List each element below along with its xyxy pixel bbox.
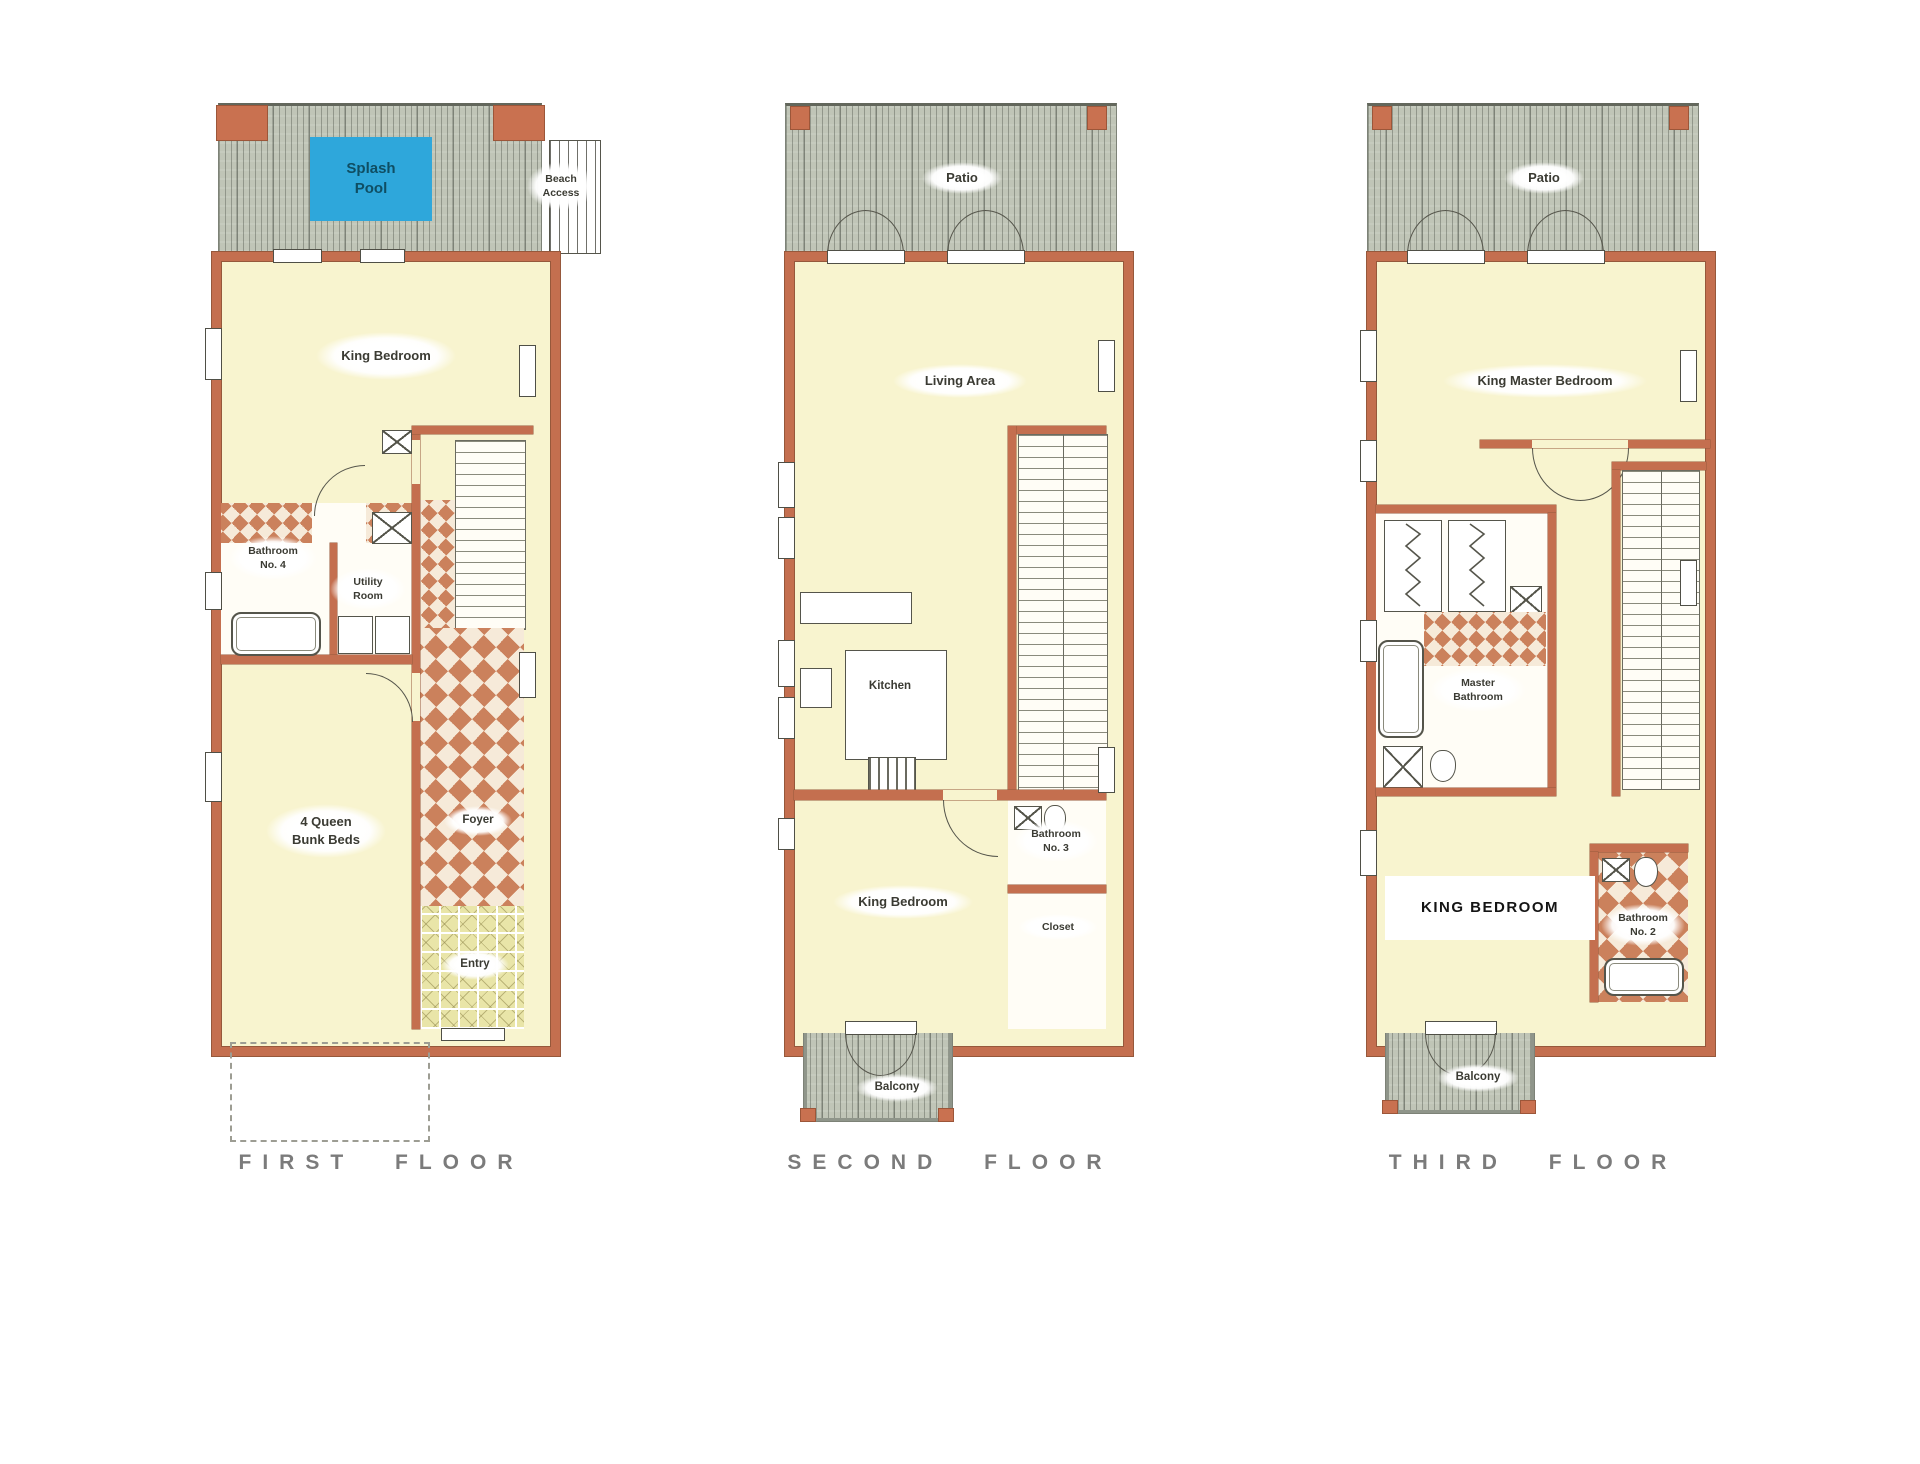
stove (868, 757, 916, 791)
bunk-room-label: 4 Queen Bunk Beds (266, 804, 386, 858)
deck-post (1088, 107, 1106, 129)
living-area-label: Living Area (893, 364, 1027, 398)
window (273, 249, 322, 263)
bunkroom-top-wall (221, 655, 412, 664)
patio-label: Patio (922, 162, 1002, 194)
splash-pool: Splash Pool (310, 137, 432, 221)
deck-post (1373, 107, 1391, 129)
window (778, 697, 795, 739)
utility-closet (372, 512, 412, 544)
toilet (1634, 857, 1658, 887)
window (205, 572, 222, 610)
third-floor-title: THIRD FLOOR (1363, 1148, 1703, 1178)
driveway-outline (230, 1042, 430, 1142)
sink (382, 430, 412, 454)
bathtub (1604, 958, 1684, 996)
window (1680, 350, 1697, 402)
king-bedroom-label: King Bedroom (833, 885, 973, 919)
closet-rod-zigzag (1464, 524, 1490, 608)
entry-label: Entry (441, 950, 509, 980)
deck-post (494, 106, 544, 140)
bathroom2-wall (1590, 844, 1688, 852)
patio-door-opening (947, 250, 1025, 264)
hall-divider-wall (1548, 513, 1556, 796)
entry-front-door-opening (441, 1028, 505, 1041)
stair-wall (1008, 426, 1016, 790)
bathtub (231, 612, 321, 656)
deck-post (217, 106, 267, 140)
deck-post (1670, 107, 1688, 129)
second-floor-title: SECOND FLOOR (780, 1148, 1120, 1178)
hall-tile-strip (420, 500, 455, 628)
floor-plan-sheet: Splash Pool Beach Access King Bedroom Ba… (0, 0, 1920, 1464)
patio-door-opening (827, 250, 905, 264)
balcony-post (1521, 1101, 1535, 1113)
closet-label: Closet (1018, 914, 1098, 940)
king-bedroom-label: King Bedroom (316, 332, 456, 380)
bedroom-door-gap (943, 790, 997, 800)
window (778, 462, 795, 508)
corridor-door-gap (412, 440, 420, 484)
window (1360, 440, 1377, 482)
bathroom4-label: Bathroom No. 4 (229, 536, 317, 580)
beach-access-label: Beach Access (527, 162, 595, 210)
window (778, 640, 795, 687)
kitchen-island (800, 592, 912, 624)
kitchen-counter (845, 650, 947, 760)
master-bathroom-label: Master Bathroom (1430, 668, 1526, 712)
master-bathtub (1378, 640, 1424, 738)
foyer-tile-floor (420, 628, 524, 906)
window (1360, 830, 1377, 876)
master-bath-tile (1424, 612, 1546, 666)
patio-door-opening (1407, 250, 1485, 264)
bath-bottom-wall (1376, 788, 1556, 796)
patio-label: Patio (1504, 162, 1584, 194)
balcony-post (801, 1109, 815, 1121)
king-bedroom-label: KING BEDROOM (1385, 876, 1595, 940)
refrigerator (800, 668, 832, 708)
window (519, 652, 536, 698)
foyer-label: Foyer (444, 806, 512, 836)
second-floor-stairs (1018, 434, 1108, 792)
hall-door-gap (1532, 440, 1628, 448)
sink (1602, 858, 1630, 882)
balcony-post (939, 1109, 953, 1121)
patio-door-opening (1527, 250, 1605, 264)
deck-post (791, 107, 809, 129)
balcony-label: Balcony (1437, 1064, 1519, 1092)
first-floor-stairs (455, 440, 526, 630)
stair-wall (1008, 426, 1106, 434)
first-floor-title: FIRST FLOOR (211, 1148, 551, 1178)
balcony-label: Balcony (856, 1074, 938, 1102)
closet-rod-zigzag (1400, 524, 1426, 608)
kitchen-label: Kitchen (854, 672, 926, 702)
window (205, 752, 222, 802)
window (1680, 560, 1697, 606)
window (1360, 330, 1377, 382)
balcony-post (1383, 1101, 1397, 1113)
corridor-wall (412, 426, 420, 1029)
utility-room-label: Utility Room (330, 568, 406, 610)
window (205, 328, 222, 380)
toilet (1430, 750, 1456, 782)
window (778, 818, 795, 850)
bathroom3-label: Bathroom No. 3 (1014, 820, 1098, 862)
sink (1510, 586, 1542, 614)
bath3-closet-divider (1008, 885, 1106, 893)
dryer (375, 616, 410, 654)
closet-top-wall (1376, 505, 1556, 513)
king-master-bedroom-label: King Master Bedroom (1443, 364, 1647, 398)
third-floor-stairs (1622, 470, 1700, 790)
window (778, 517, 795, 559)
washer (338, 616, 373, 654)
window (1098, 747, 1115, 793)
sink (1383, 746, 1423, 788)
stair-wall (1612, 470, 1620, 796)
stair-wall (1612, 462, 1706, 470)
bathroom2-label: Bathroom No. 2 (1601, 904, 1685, 946)
window (1360, 620, 1377, 662)
corridor-top-wall (412, 426, 533, 434)
foyer-door-gap (412, 673, 420, 721)
window (519, 345, 536, 397)
window (360, 249, 405, 263)
window (1098, 340, 1115, 392)
